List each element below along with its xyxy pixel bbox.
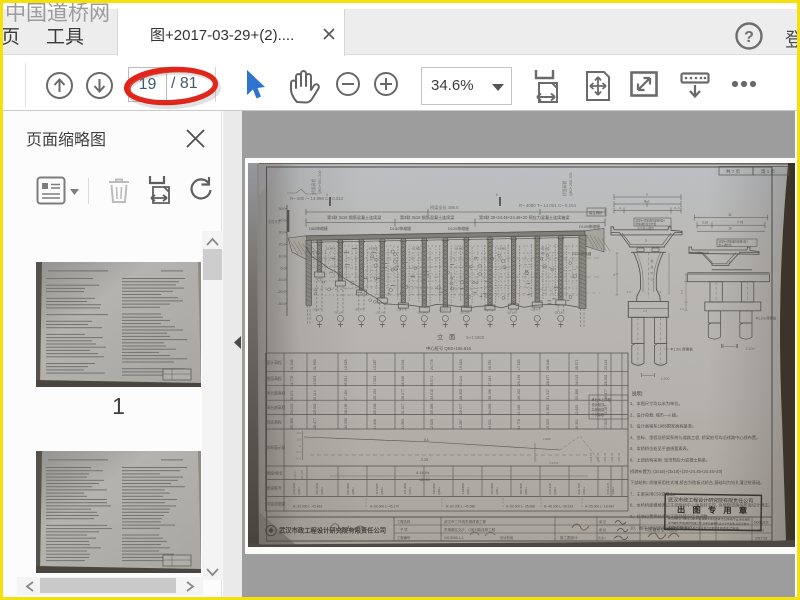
svg-text:?: ?	[744, 29, 754, 46]
